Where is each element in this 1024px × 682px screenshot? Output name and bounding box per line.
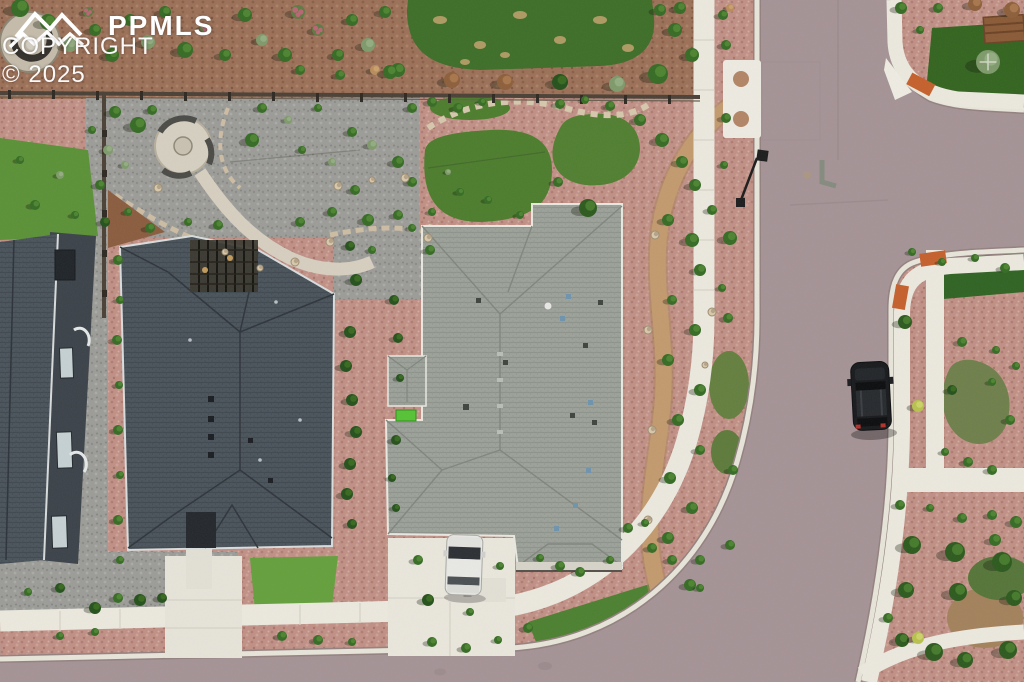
aerial-scene-svg (0, 0, 1024, 682)
aerial-photo: PPMLS COPYRIGHT © 2025 (0, 0, 1024, 682)
photo-grain-overlay (0, 0, 1024, 682)
